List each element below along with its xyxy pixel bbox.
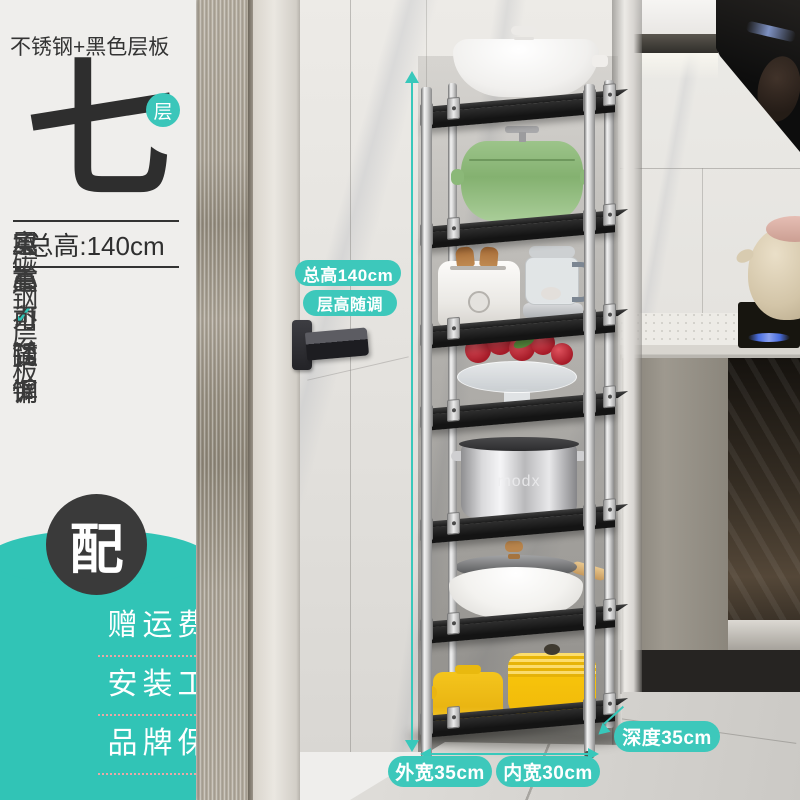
tier-badge: 层 [146, 93, 180, 127]
door-stile [253, 0, 300, 800]
wall-grout-line [350, 0, 351, 752]
glass-fruit-bowl [457, 361, 577, 393]
pole-clamp [603, 303, 616, 326]
gift-text: 品牌保证 [98, 718, 196, 775]
pole-clamp [447, 317, 460, 340]
under-cabinet-light [630, 53, 718, 79]
pole-clamp [603, 203, 616, 226]
pan-lid-knob [505, 541, 523, 552]
pole-clamp [447, 217, 460, 240]
rack-pole-front-left [421, 87, 432, 767]
shelf-rack: modx [405, 75, 635, 775]
total-height-pill: 总高140cm [295, 260, 401, 286]
kitchen-background [620, 0, 800, 800]
feature-text: 层高可随调 [12, 224, 39, 409]
pole-clamp [447, 97, 460, 120]
pole-clamp [447, 399, 460, 422]
pole-clamp [603, 83, 616, 106]
tier-adjust-pill: 层高随调 [303, 290, 397, 316]
upper-cabinet [630, 0, 718, 34]
height-measure-line [411, 82, 413, 742]
pot-lid-seam [469, 159, 575, 161]
depth-pill: 深度35cm [614, 721, 720, 752]
bread-slice [479, 246, 499, 267]
red-fruit [551, 343, 573, 365]
inner-width-pill: 内宽30cm [496, 756, 600, 787]
green-dutch-oven [461, 141, 583, 221]
feature-item: ✓ 层高可随调 [0, 294, 12, 338]
fluted-glass-door [196, 0, 300, 800]
pole-clamp [603, 498, 616, 521]
pole-clamp [447, 706, 460, 729]
divider-line [13, 220, 179, 222]
hood-display-light [745, 21, 796, 43]
pot-handles [451, 169, 593, 185]
arrow-down-icon [405, 740, 419, 752]
product-image: modx [0, 0, 800, 800]
pole-clamp [603, 598, 616, 621]
promo-panel: 不锈钢+黑色层板 七 层 总高:140cm ✓ 实心不锈钢 ✓ 碳钢层板 ✓ 承… [0, 0, 196, 800]
width-measure-line [430, 753, 590, 755]
pot-brand-logo: modx [461, 473, 577, 491]
pole-clamp [447, 512, 460, 535]
arrow-up-icon [405, 71, 419, 83]
outer-width-pill: 外宽35cm [388, 756, 492, 787]
lower-cabinet-glass [728, 358, 800, 650]
gift-text: 安装工具 [98, 659, 196, 716]
gift-text: 赠运费险 [98, 600, 196, 657]
backsplash-grout-line [620, 168, 800, 169]
bread-slice [455, 246, 475, 268]
fluted-glass-panel [196, 0, 248, 800]
stainless-stockpot: modx [461, 443, 577, 518]
backsplash-grout-line [702, 168, 703, 316]
door-handle [305, 327, 369, 360]
pole-clamp [447, 612, 460, 635]
rack-pole-front-right [584, 84, 595, 758]
tier-count-character: 七 [26, 56, 176, 206]
white-casserole-pot [453, 39, 599, 97]
toe-kick [620, 650, 800, 694]
flame-icon [748, 333, 790, 342]
gift-badge: 配 [46, 494, 147, 595]
upper-cabinet-trim [630, 34, 718, 53]
drawer-front [728, 620, 800, 650]
glass-kettle [525, 257, 579, 305]
pole-clamp [603, 385, 616, 408]
wall-tile-edge [307, 356, 409, 380]
